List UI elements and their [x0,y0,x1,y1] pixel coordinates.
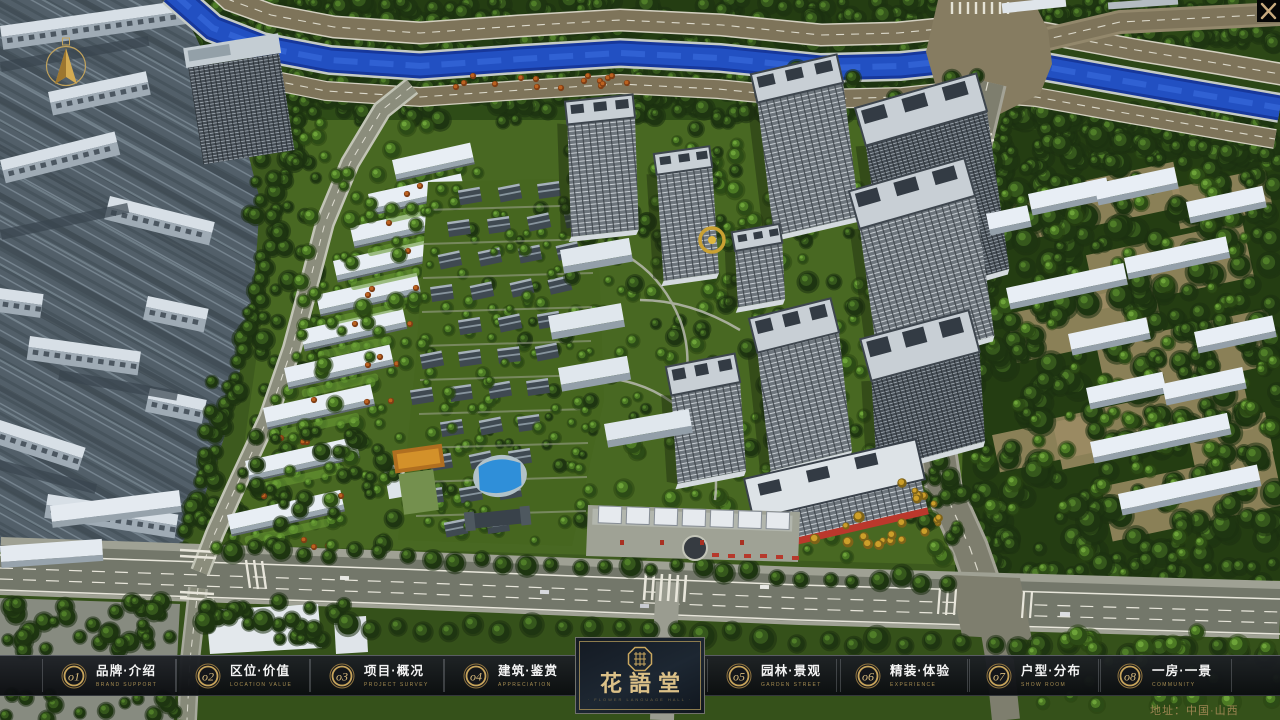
svg-text:o6: o6 [862,669,874,683]
svg-text:o7: o7 [993,669,1006,683]
svg-text:o4: o4 [470,669,482,683]
svg-text:o3: o3 [336,669,348,683]
svg-text:o5: o5 [733,669,745,683]
svg-text:o2: o2 [202,669,214,683]
svg-text:o1: o1 [68,669,80,683]
svg-text:o8: o8 [1124,669,1136,683]
